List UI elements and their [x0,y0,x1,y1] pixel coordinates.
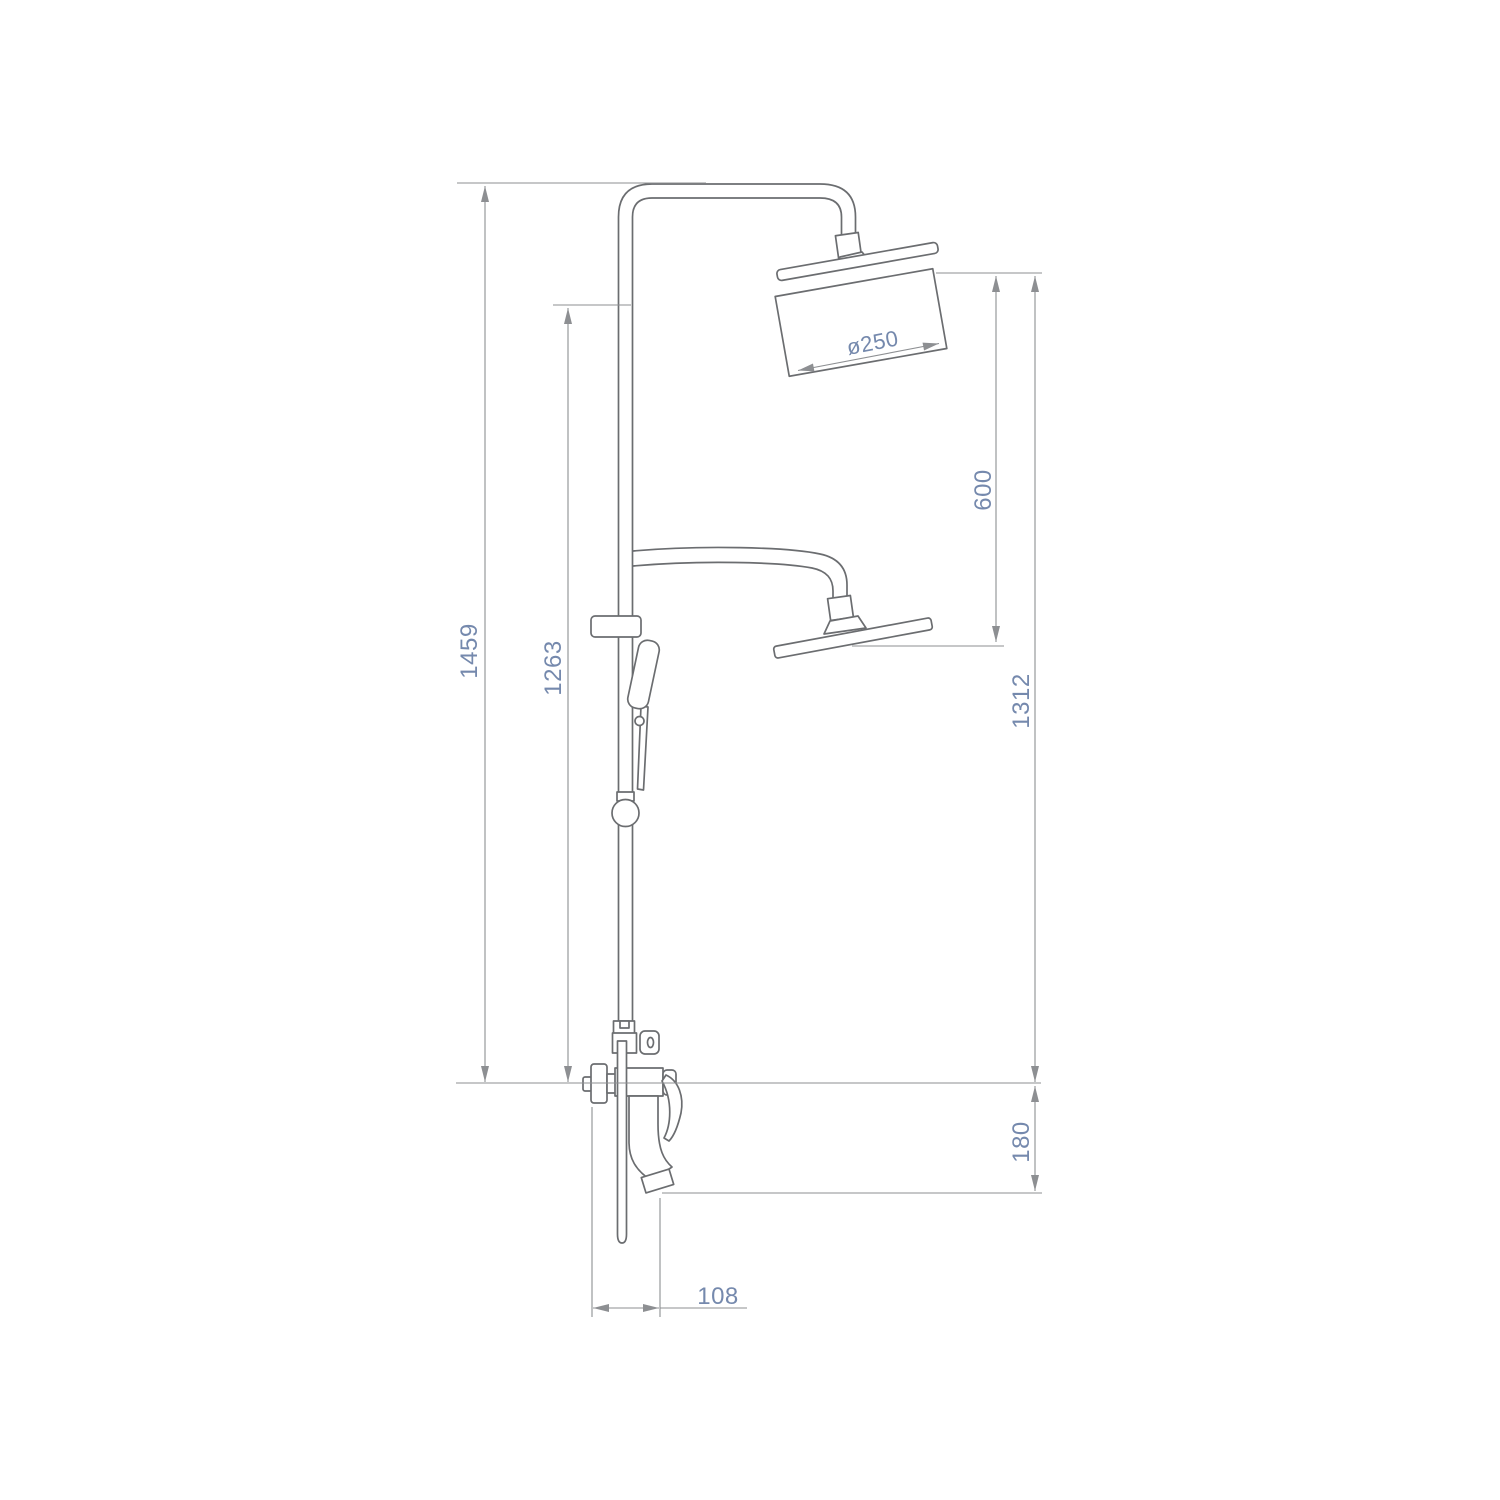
lower-arm-inner [633,562,833,599]
lower-arm-outer [633,547,847,599]
handshower-holder-bracket [591,616,641,637]
rail-bottom-notch [620,1021,629,1028]
shower-column-dimension-drawing: 1459 1263 600 1312 180 108 ø250 [0,0,1500,1500]
dimension-label-head-to-arm: 600 [970,469,997,511]
dimension-label-riser-height: 1263 [540,640,567,695]
dimension-label-spout-reach: 108 [697,1283,739,1310]
slider-ball [612,800,639,827]
dimension-label-spout-drop: 180 [1008,1121,1035,1163]
dimension-annotations: 1459 1263 600 1312 180 108 ø250 [456,183,1042,1317]
dimension-label-overall-height: 1459 [456,623,483,678]
handshower-wand [626,639,661,711]
overhead-shower-drum [775,269,947,377]
dimension-label-lower-arm-height: 1312 [1008,673,1035,728]
valve-lever-handle [662,1075,682,1141]
handshower-button [635,717,644,726]
handshower-hose [618,1041,627,1243]
technical-drawing-page: 1459 1263 600 1312 180 108 ø250 [0,0,1500,1500]
diverter-knob [640,1031,659,1054]
